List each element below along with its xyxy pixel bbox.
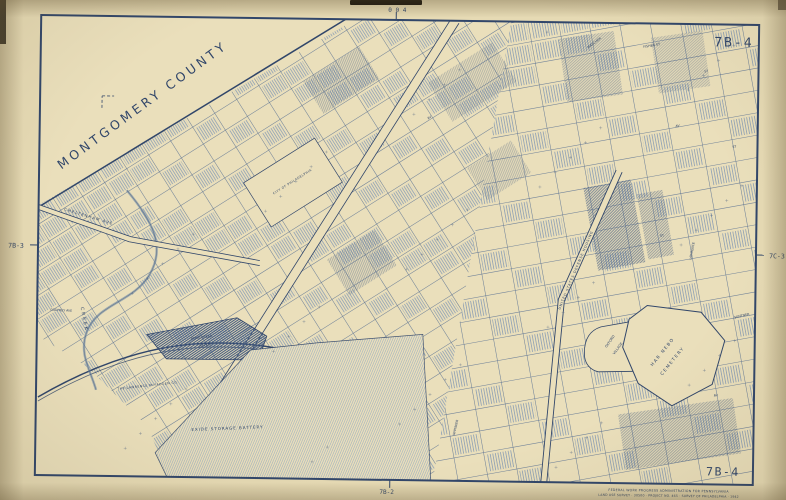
map-sheet: MONTGOMERY COUNTY7B-47B-47B-37C-37B-20 0… xyxy=(0,0,786,500)
map-label-plate-left-edge: 7B-3 xyxy=(8,242,24,250)
map-label-suffix-st-2: ST xyxy=(732,144,737,149)
map-label-plate-top-edge: 0 0 4 xyxy=(388,7,407,14)
page-edge-shadow-left xyxy=(0,0,6,44)
map-label-plate-top-right: 7B-4 xyxy=(714,35,754,51)
map-label-plate-bottom-right: 7B-4 xyxy=(706,464,740,478)
map-label-suffix-st-1: ST xyxy=(704,69,709,74)
map-label-plate-bottom-edge: 7B-2 xyxy=(379,489,394,496)
page-edge-shadow-right xyxy=(778,0,786,10)
map-label-caption-line-2: LAND USE SURVEY · 30500 · PROJECT NO. 46… xyxy=(598,493,739,499)
map-label-suffix-st-3: ST xyxy=(660,233,665,238)
map-canvas: MONTGOMERY COUNTY7B-47B-47B-37C-37B-20 0… xyxy=(0,0,786,500)
binding-mark-top xyxy=(350,0,422,5)
map-label-plate-right-edge: 7C-3 xyxy=(769,252,785,260)
map-page: MONTGOMERY COUNTY7B-47B-47B-37C-37B-20 0… xyxy=(0,0,786,500)
